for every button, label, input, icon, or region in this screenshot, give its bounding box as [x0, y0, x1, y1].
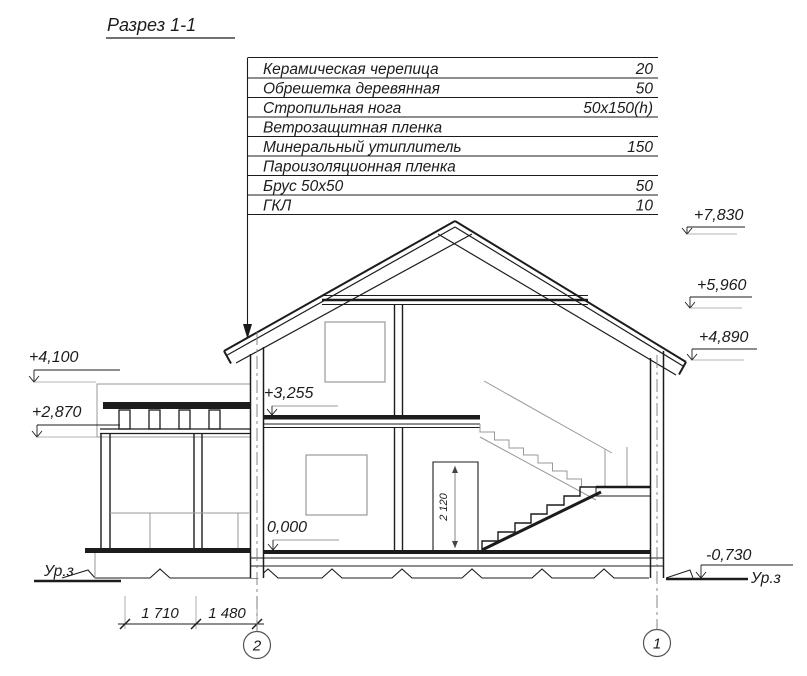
axes: 2 1: [244, 332, 671, 659]
layer-value: 10: [636, 198, 654, 215]
dimension-span-left: 1 710: [141, 605, 179, 622]
ground-floor-slab: [250, 550, 664, 566]
table-row: Стропильная нога 50x150(h): [263, 100, 653, 117]
layer-label: Минеральный утиплитель: [263, 139, 462, 156]
stair-stringer: [482, 492, 601, 550]
bottom-dimensions: 1 710 1 480: [118, 596, 264, 629]
elevation-value: +2,870: [32, 404, 81, 421]
table-row: Минеральный утиплитель 150: [263, 139, 653, 156]
elevation-mark-eave: +4,890: [687, 329, 757, 360]
elevation-mark-ground-floor: 0,000: [267, 519, 339, 550]
porch-columns: [101, 433, 202, 548]
elevation-value: +5,960: [697, 277, 746, 294]
elevation-value: +4,890: [699, 329, 748, 346]
page-title: Разрез 1-1: [107, 15, 196, 35]
left-rafter: [236, 234, 472, 363]
upper-flight: [480, 424, 596, 487]
table-row: ГКЛ 10: [263, 198, 653, 215]
elevation-value: 0,000: [267, 519, 307, 536]
layers-table: Керамическая черепица 20 Обрешетка дерев…: [243, 58, 658, 340]
axis-number-2: 2: [252, 638, 262, 655]
door-height-dim: 2 120: [438, 492, 450, 521]
roof: [224, 221, 686, 375]
drawing-svg: 2 120 Керамическая череп: [0, 0, 807, 676]
porch-joists: [119, 410, 220, 429]
axis-number-1: 1: [653, 636, 661, 653]
elevation-marks: +7,830 +5,960 +4,890 +4,100: [29, 207, 793, 578]
elevation-mark-attic: +5,960: [685, 277, 752, 308]
section-drawing: 2 120 Керамическая череп: [0, 0, 807, 676]
layer-label: Керамическая черепица: [263, 61, 439, 78]
elevation-mark-second-floor: +3,255: [264, 385, 338, 415]
layer-label: Пароизоляционная пленка: [263, 159, 456, 176]
table-row: Ветрозащитная пленка: [263, 120, 442, 137]
layer-label: Обрешетка деревянная: [263, 81, 440, 98]
layer-value: 50: [636, 81, 654, 98]
layer-label: Стропильная нога: [263, 100, 402, 117]
ground-label-left: Ур.з: [43, 563, 74, 580]
layer-value: 150: [627, 139, 653, 156]
second-floor-slab: [264, 415, 480, 428]
layer-value: 20: [635, 61, 654, 78]
layer-label: Брус 50x50: [263, 178, 344, 195]
ground-label-right: Ур.з: [750, 570, 781, 587]
elevation-mark-porch-roof: +4,100: [29, 349, 120, 382]
table-row: Керамическая черепица 20: [263, 61, 653, 78]
elevation-value: +4,100: [29, 349, 78, 366]
layer-label: ГКЛ: [263, 198, 292, 215]
elevation-value: +7,830: [694, 207, 743, 224]
elevation-value: +3,255: [264, 385, 313, 402]
layer-label: Ветрозащитная пленка: [263, 120, 442, 137]
ground-lines: [34, 553, 748, 581]
dimension-span-right: 1 480: [208, 605, 246, 622]
staircase: [480, 381, 650, 550]
porch: [85, 384, 253, 553]
title-block: Разрез 1-1: [106, 15, 235, 38]
first-floor-window: [306, 455, 367, 515]
second-floor-window: [325, 322, 385, 382]
layer-value: 50x150(h): [583, 100, 653, 117]
stair-railing: [484, 381, 612, 453]
layer-value: 50: [636, 178, 654, 195]
table-row: Пароизоляционная пленка: [263, 159, 456, 176]
table-row: Обрешетка деревянная 50: [263, 81, 653, 98]
elevation-mark-ridge: +7,830: [682, 207, 745, 234]
table-row: Брус 50x50 50: [263, 178, 653, 195]
elevation-value: -0,730: [706, 547, 751, 564]
door-opening: 2 120: [433, 462, 478, 550]
attic-ceiling: [322, 296, 588, 305]
